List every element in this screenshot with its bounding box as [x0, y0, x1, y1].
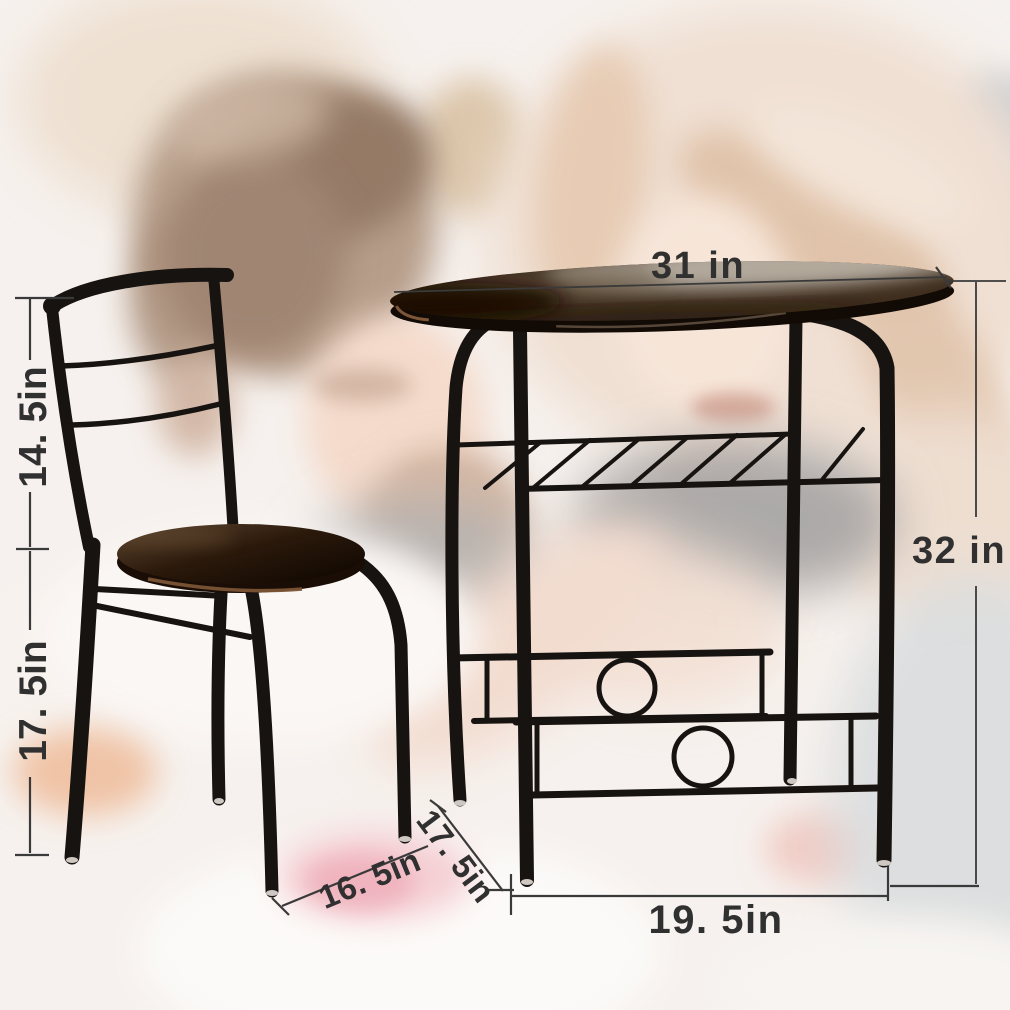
svg-text:32 in: 32 in: [912, 530, 1006, 572]
svg-text:17. 5in: 17. 5in: [12, 640, 55, 761]
svg-text:31 in: 31 in: [651, 245, 745, 287]
svg-text:14. 5in: 14. 5in: [12, 366, 55, 487]
svg-text:19. 5in: 19. 5in: [648, 898, 783, 942]
